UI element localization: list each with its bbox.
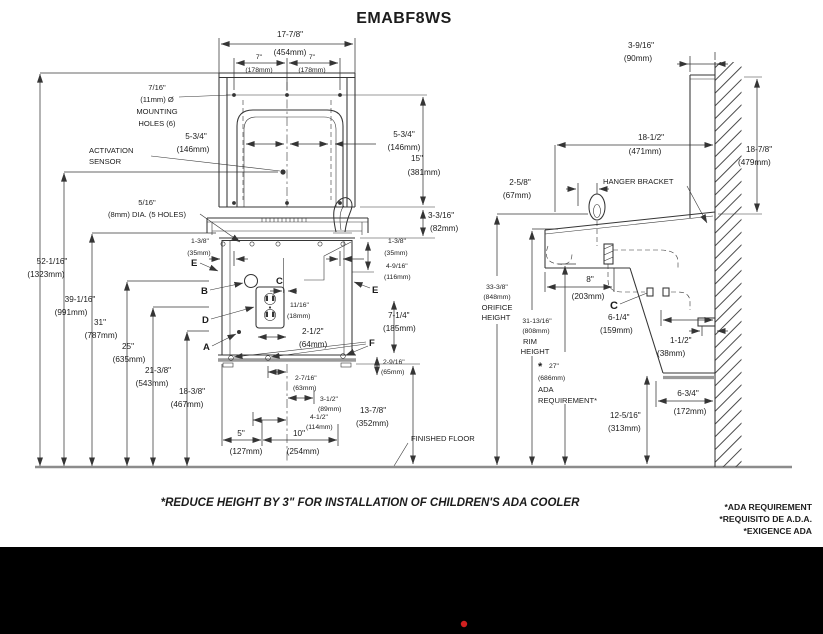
finished-floor-label: FINISHED FLOOR [411, 434, 475, 443]
dim-38-in: 1-1/2" [670, 336, 692, 345]
dim-159-mm: (159mm) [600, 326, 633, 335]
rim-in: 31-13/16" [522, 318, 552, 325]
dim-471-mm: (471mm) [629, 147, 662, 156]
mounting-holes-l1: 7/16" [148, 83, 166, 92]
dim-185-in: 7-1/4" [388, 311, 410, 320]
ref-letter-b: B [201, 286, 208, 297]
dim-sensor-left-mm: (146mm) [177, 145, 210, 154]
page-title: EMABF8WS [356, 10, 452, 27]
ref-letter-f: F [369, 338, 375, 349]
ada-in: 27" [549, 363, 560, 370]
height-1-mm: (1323mm) [27, 270, 65, 279]
dim-313-in: 12-5/16" [610, 411, 641, 420]
dim-sensor-left-in: 5-3/4" [185, 132, 207, 141]
dim-90-mm: (90mm) [624, 54, 652, 63]
dim-114-mm: (114mm) [306, 424, 333, 431]
dim-65-mm: (65mm) [381, 369, 404, 376]
orifice-l4: HEIGHT [482, 313, 511, 322]
dim-127-in: 5" [237, 429, 245, 438]
dim-spacing-left-in: 7" [256, 54, 263, 61]
dim-313-mm: (313mm) [608, 424, 641, 433]
dim-89-in: 3-1/2" [320, 396, 338, 403]
ref-letter-a: A [203, 342, 210, 353]
ref-a-dot [237, 330, 241, 334]
dim-471-in: 18-1/2" [638, 133, 664, 142]
orifice-l3: ORIFICE [482, 303, 513, 312]
dim-116-mm: (116mm) [384, 274, 411, 281]
rim-l4: HEIGHT [521, 347, 550, 356]
dimension-drawing: EMABF8WS [0, 0, 823, 634]
dim-203-in: 8" [586, 275, 594, 284]
activation-sensor-l1: ACTIVATION [89, 146, 133, 155]
height-6-mm: (467mm) [171, 400, 204, 409]
ada-star: * [538, 361, 543, 373]
dim-spacing-right-in: 7" [309, 54, 316, 61]
dim-spacing-right-mm: (178mm) [298, 67, 325, 74]
dim-185-mm: (185mm) [383, 324, 416, 333]
dim-edge-left-mm: (35mm) [187, 250, 210, 257]
dim-82-in: 3-3/16" [428, 211, 454, 220]
dim-edge-left-in: 1-3/8" [191, 238, 209, 245]
dim-159-in: 6-1/4" [608, 313, 630, 322]
orifice-mm: (848mm) [483, 294, 510, 301]
height-2-mm: (991mm) [55, 308, 88, 317]
dim-spacing-left-mm: (178mm) [245, 67, 272, 74]
mounting-holes-l4: HOLES (6) [138, 119, 176, 128]
height-5-mm: (543mm) [136, 379, 169, 388]
dim-width-in: 17-7/8" [277, 30, 303, 39]
dim-89-mm: (89mm) [318, 406, 341, 413]
dim-114-in: 4-1/2" [310, 414, 328, 421]
height-1-in: 52-1/16" [37, 257, 68, 266]
red-dot [461, 621, 467, 627]
centerline-symbol-front: C [276, 276, 283, 287]
dim-64-mm: (64mm) [299, 340, 327, 349]
dim-479-in: 18-7/8" [746, 145, 772, 154]
ada-l4: REQUIREMENT* [538, 396, 597, 405]
dim-18-in: 11/16" [290, 302, 310, 309]
ada-l3: ADA [538, 385, 555, 394]
ada-note-fr: *EXIGENCE ADA [744, 526, 812, 536]
dim-edge-right-mm: (35mm) [384, 250, 407, 257]
five-holes-l2: (8mm) DIA. (5 HOLES) [108, 210, 187, 219]
dim-edge-right-in: 1-3/8" [388, 238, 406, 245]
orifice-in: 33-3/8" [486, 284, 508, 291]
dim-172-in: 6-3/4" [677, 389, 699, 398]
ada-mm: (686mm) [538, 375, 565, 382]
dim-sensor-right-in: 5-3/4" [393, 130, 415, 139]
dim-479-mm: (479mm) [738, 158, 771, 167]
dim-352-mm: (352mm) [356, 419, 389, 428]
dim-15-in: 15" [411, 154, 423, 163]
dim-18-mm: (18mm) [287, 313, 310, 320]
height-2-in: 39-1/16" [65, 295, 96, 304]
dim-sensor-right-mm: (146mm) [388, 143, 421, 152]
mounting-holes-l3: MOUNTING [136, 107, 177, 116]
dim-82-mm: (82mm) [430, 224, 458, 233]
height-5-in: 21-3/8" [145, 366, 171, 375]
height-3-mm: (787mm) [85, 331, 118, 340]
dim-67-in: 2-5/8" [509, 178, 531, 187]
mounting-holes-l2: (11mm) Ø [140, 95, 174, 104]
dim-width-mm: (454mm) [274, 48, 307, 57]
five-holes-l1: 5/16" [138, 198, 156, 207]
dim-63-mm: (63mm) [293, 385, 316, 392]
dim-90-in: 3-9/16" [628, 41, 654, 50]
rim-mm: (808mm) [522, 328, 549, 335]
dim-127-mm: (127mm) [230, 447, 263, 456]
ada-note-en: *ADA REQUIREMENT [724, 502, 812, 512]
dim-254-in: 10" [293, 429, 305, 438]
ref-letter-d: D [202, 315, 209, 326]
dim-116-in: 4-9/16" [386, 263, 408, 270]
wall-hatching [716, 62, 742, 467]
height-3-in: 31" [94, 318, 106, 327]
dim-63-in: 2-7/16" [295, 375, 317, 382]
ref-letter-e-right: E [372, 285, 378, 296]
activation-sensor-dot [280, 169, 285, 174]
dim-65-in: 2-9/16" [383, 359, 405, 366]
ref-letter-e-left: E [191, 258, 197, 269]
rim-l3: RIM [523, 337, 537, 346]
hanger-bracket-label: HANGER BRACKET [603, 177, 674, 186]
height-4-in: 25" [122, 342, 134, 351]
activation-sensor-l2: SENSOR [89, 157, 122, 166]
dim-352-in: 13-7/8" [360, 406, 386, 415]
dim-254-mm: (254mm) [287, 447, 320, 456]
dim-64-in: 2-1/2" [302, 327, 324, 336]
dim-172-mm: (172mm) [674, 407, 707, 416]
reduce-height-note: *REDUCE HEIGHT BY 3" FOR INSTALLATION OF… [161, 497, 580, 509]
height-6-in: 18-3/8" [179, 387, 205, 396]
dim-38-mm: (38mm) [657, 349, 685, 358]
ref-letter-c-side: C [610, 300, 618, 312]
ada-note-es: *REQUISITO DE A.D.A. [719, 514, 812, 524]
dim-15-mm: (381mm) [408, 168, 441, 177]
height-4-mm: (635mm) [113, 355, 146, 364]
spec-sheet-page: EMABF8WS [0, 0, 823, 634]
dim-67-mm: (67mm) [503, 191, 531, 200]
dim-203-mm: (203mm) [572, 292, 605, 301]
footer-band [0, 547, 823, 634]
